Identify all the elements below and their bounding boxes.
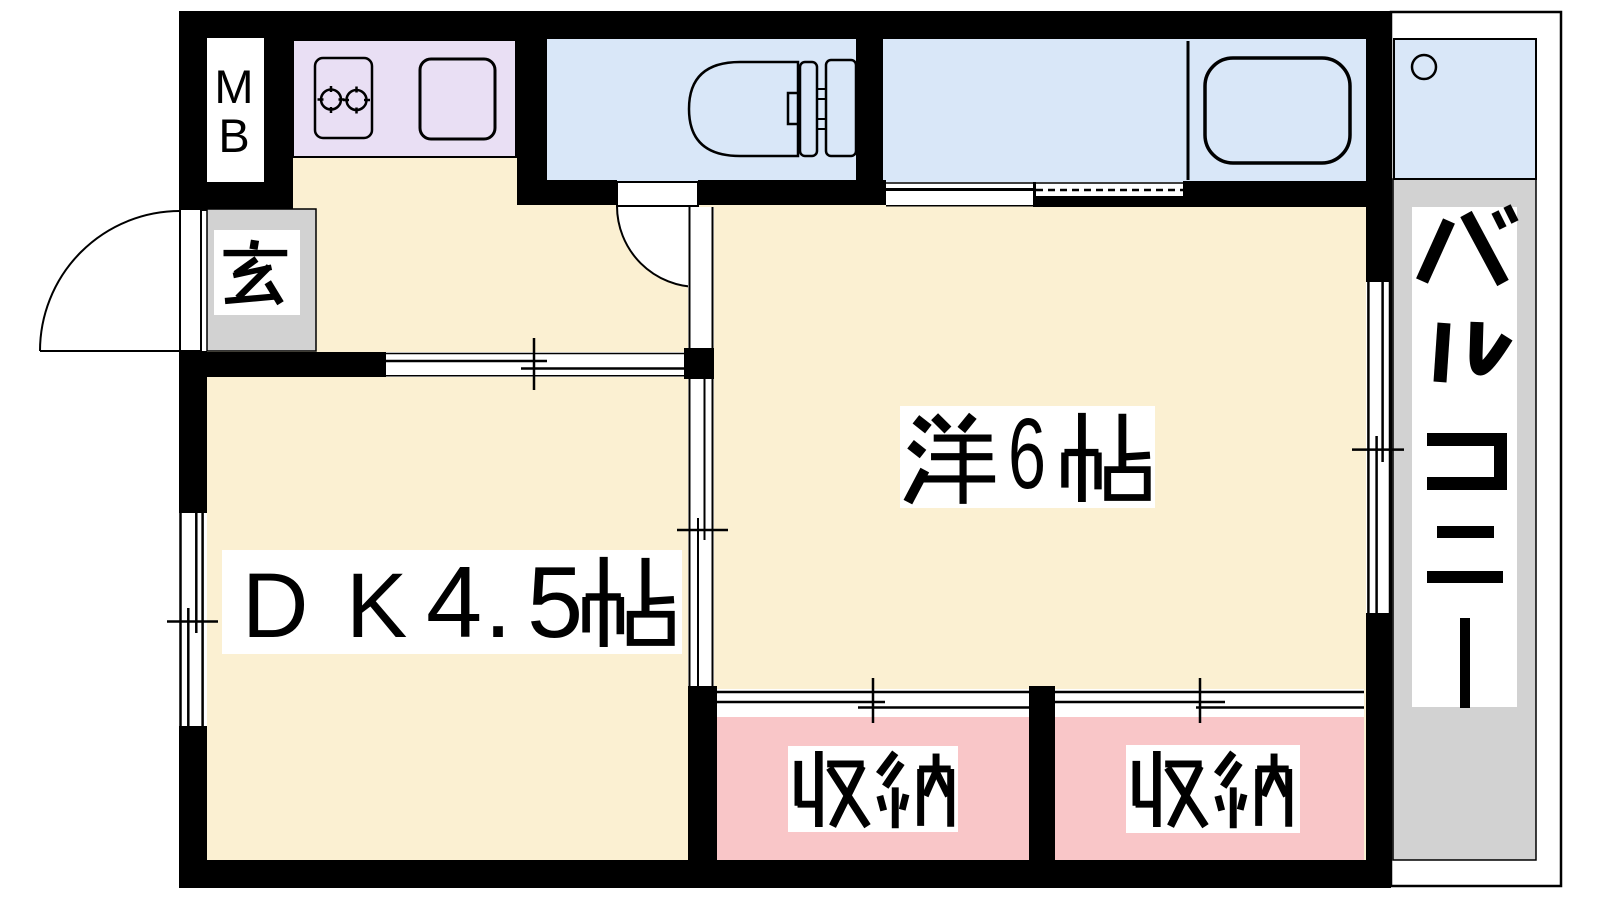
svg-text:4: 4 (426, 547, 482, 659)
svg-text:B: B (218, 109, 249, 162)
svg-text:K: K (346, 555, 407, 657)
svg-text:5: 5 (527, 547, 583, 659)
svg-text:M: M (214, 60, 253, 113)
svg-text:.: . (484, 547, 512, 659)
svg-text:D: D (242, 555, 308, 657)
svg-text:6: 6 (1008, 398, 1046, 510)
